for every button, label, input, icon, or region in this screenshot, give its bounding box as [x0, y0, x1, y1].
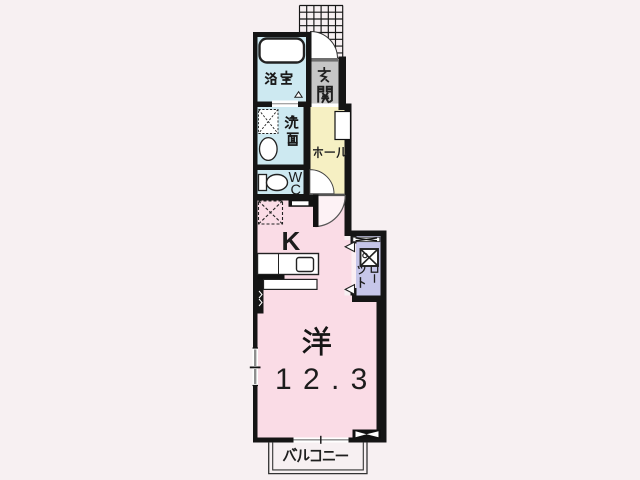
svg-text:12.3: 12.3: [275, 363, 379, 396]
svg-text:K: K: [282, 226, 301, 256]
svg-text:C: C: [291, 183, 301, 199]
